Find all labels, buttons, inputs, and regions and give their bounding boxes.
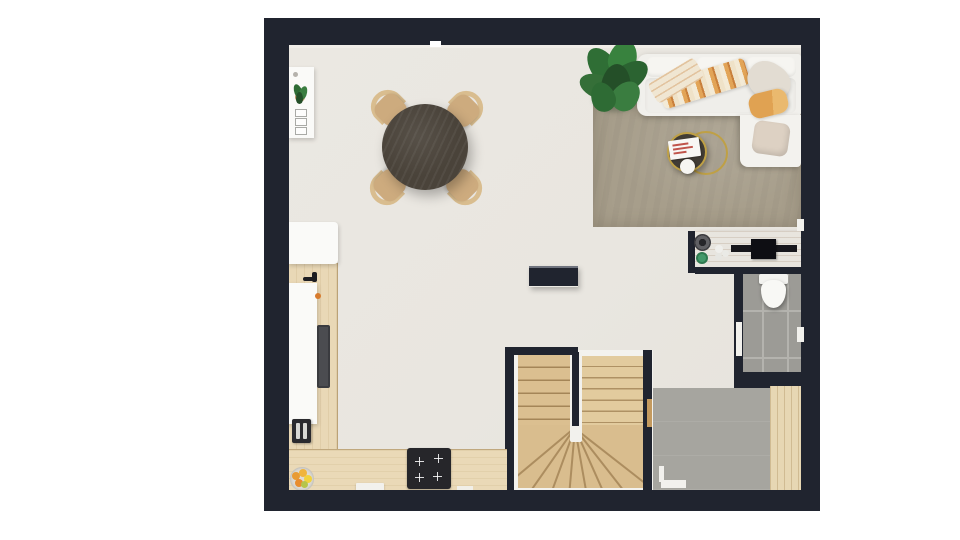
right-wall-door-tick-lower xyxy=(797,327,804,342)
outer-wall-right xyxy=(801,18,820,511)
fruit-bowl[interactable] xyxy=(290,467,314,491)
induction-cooktop[interactable] xyxy=(407,448,451,489)
pouf-cushion[interactable] xyxy=(751,120,791,158)
stair-left-flight xyxy=(518,355,570,433)
mid-floor-wall-stub xyxy=(529,266,578,287)
small-potted-plant[interactable] xyxy=(292,84,308,106)
kitchen-sink[interactable] xyxy=(317,325,330,388)
door-threshold[interactable] xyxy=(661,480,686,488)
burner-mark xyxy=(415,457,424,466)
stair-wall-wood-tick xyxy=(647,399,652,427)
burner-mark xyxy=(415,473,424,482)
kitchen-counter-bottom xyxy=(288,449,507,490)
tile-seam xyxy=(743,310,801,312)
top-wall-baseboard xyxy=(289,45,801,48)
newel-cap xyxy=(570,426,582,442)
divider-trim xyxy=(579,352,582,428)
outer-wall-bottom xyxy=(264,490,820,511)
toaster-slot xyxy=(303,423,307,439)
console-knob xyxy=(293,72,298,77)
kitchen-wall-cabinet[interactable] xyxy=(288,222,338,264)
tv[interactable] xyxy=(751,239,776,259)
entry-floor xyxy=(652,388,770,490)
console-drawer xyxy=(295,109,307,117)
monstera-plant[interactable] xyxy=(585,40,643,118)
toaster-slot xyxy=(296,423,300,439)
white-vase[interactable] xyxy=(680,159,695,174)
round-speaker[interactable] xyxy=(694,234,711,251)
kitchen-white-counter-unit[interactable] xyxy=(288,283,317,424)
kitchen-faucet-base xyxy=(312,272,317,282)
tile-seam xyxy=(743,357,801,359)
console-side-wall-stub xyxy=(688,231,695,273)
stair-right-flight xyxy=(581,356,643,430)
bathroom-door-leaf[interactable] xyxy=(736,322,742,356)
green-cup[interactable] xyxy=(696,252,708,264)
plant-leaf xyxy=(296,92,303,104)
toaster[interactable] xyxy=(292,419,311,443)
stair-center-divider-wall xyxy=(572,352,579,428)
tread-seam xyxy=(575,428,643,488)
console-drawer xyxy=(295,118,307,126)
burner-mark xyxy=(434,454,443,463)
floor-plan-canvas xyxy=(0,0,960,540)
fruit xyxy=(301,481,308,488)
outer-wall-top xyxy=(264,18,820,45)
window-sill-top xyxy=(430,41,441,47)
console-drawer xyxy=(295,127,307,135)
burner-mark xyxy=(433,472,442,481)
round-dining-table[interactable] xyxy=(382,104,468,190)
entry-wood-mat[interactable] xyxy=(770,386,801,490)
stair-top-wall xyxy=(505,347,578,355)
tread-seam xyxy=(518,427,576,488)
right-wall-door-tick-upper xyxy=(797,219,804,231)
staircase xyxy=(505,347,657,490)
outer-wall-left xyxy=(264,18,289,511)
decor-pebble xyxy=(722,250,729,257)
decor-pebble xyxy=(715,253,722,260)
bathroom-top-wall xyxy=(695,267,801,274)
door-jamb xyxy=(659,466,664,482)
orange-utensil xyxy=(315,293,321,299)
